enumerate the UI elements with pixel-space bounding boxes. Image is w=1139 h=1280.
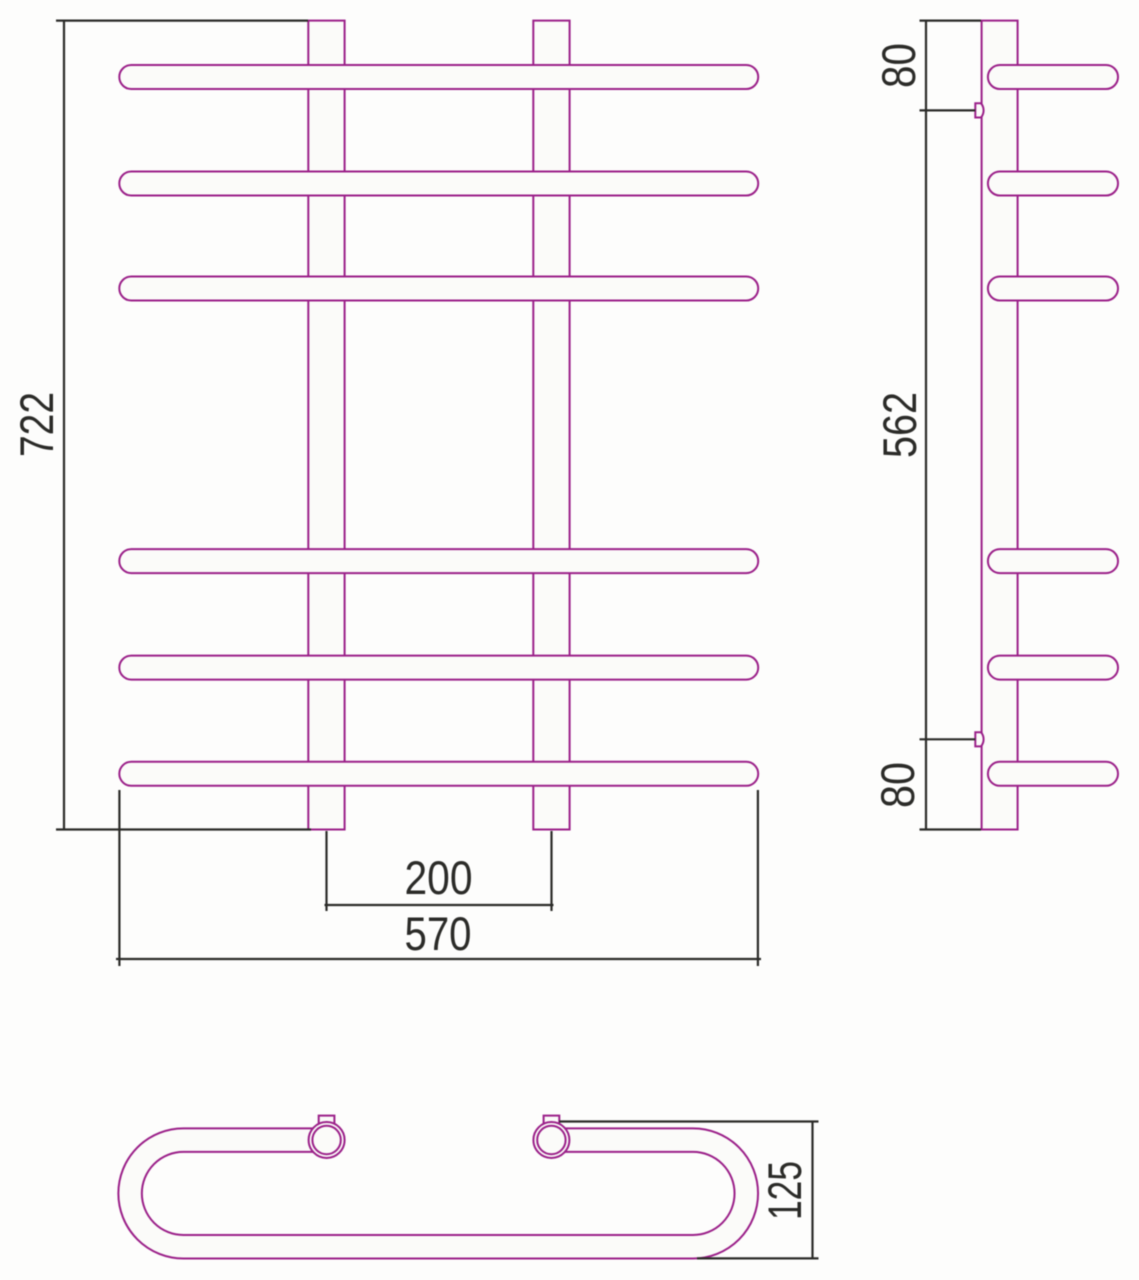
svg-text:125: 125	[758, 1161, 811, 1220]
svg-text:570: 570	[405, 907, 472, 960]
svg-text:80: 80	[872, 43, 925, 88]
svg-text:562: 562	[873, 392, 926, 458]
svg-text:80: 80	[871, 762, 924, 808]
svg-text:200: 200	[405, 851, 473, 904]
svg-text:722: 722	[10, 392, 63, 457]
